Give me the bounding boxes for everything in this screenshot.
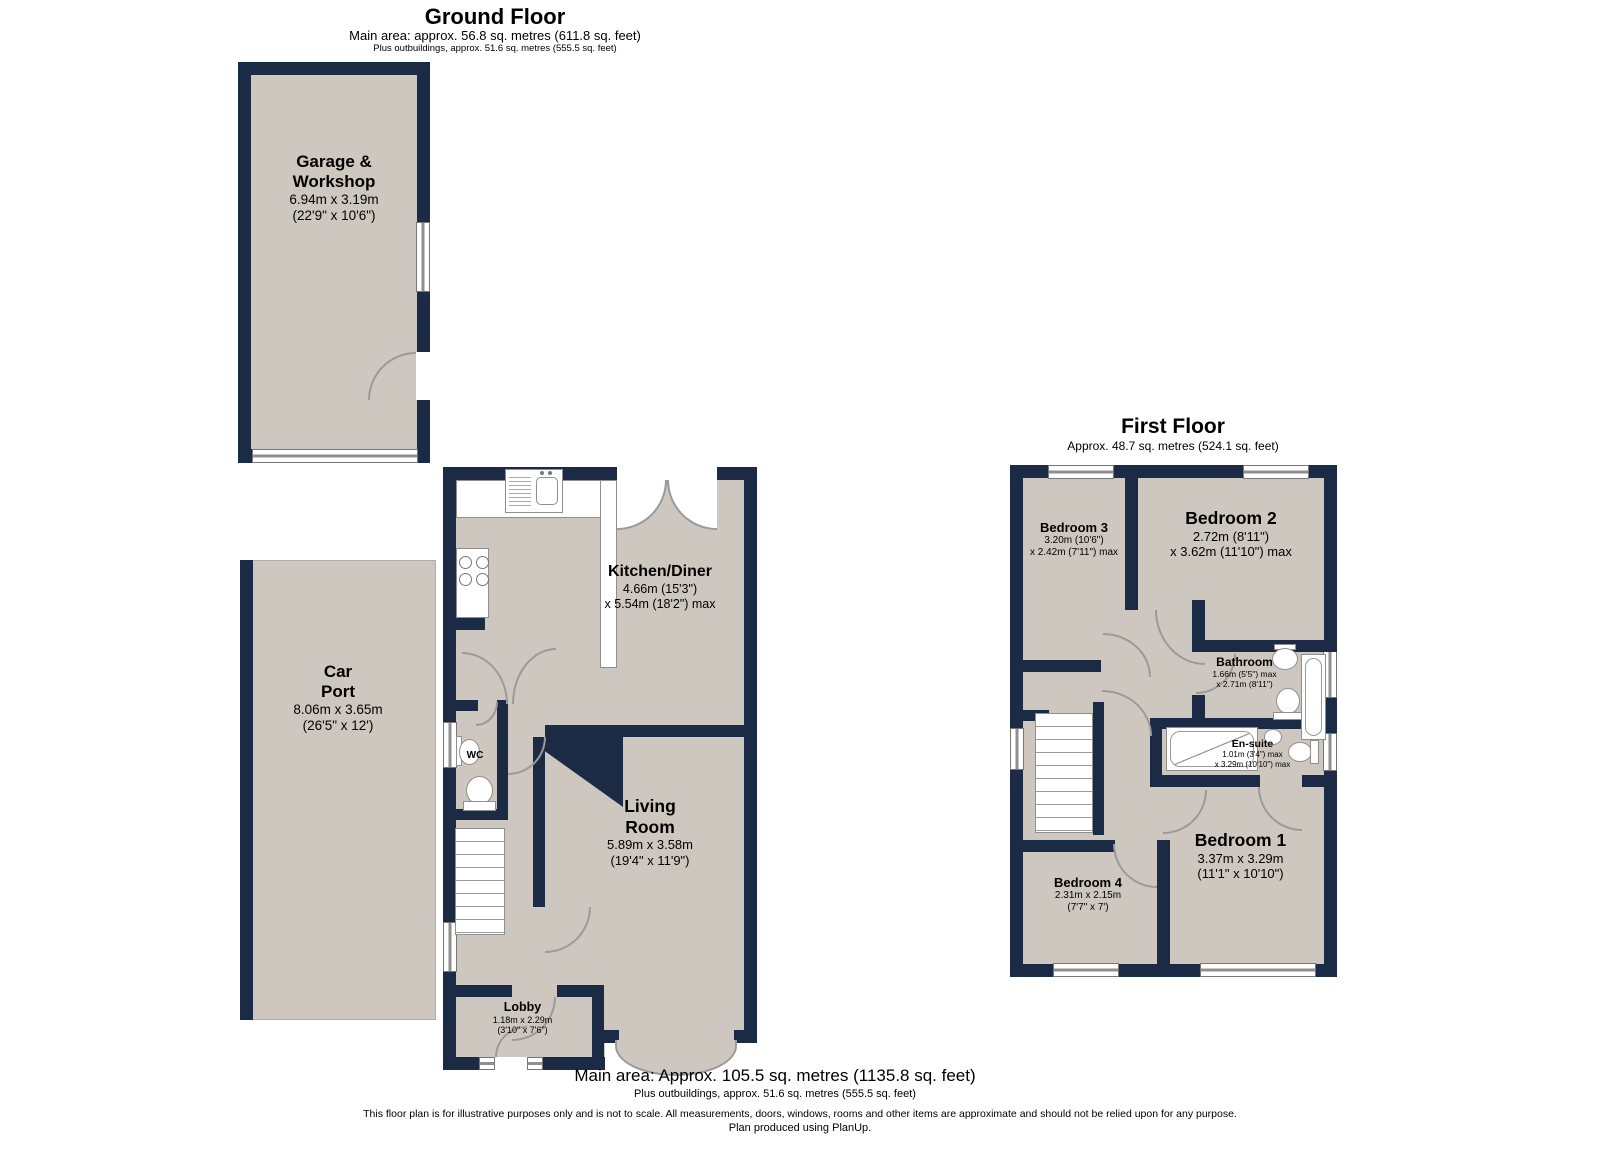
lobby-label: Lobby 1.18m x 2.29m (3'10" x 7'6")	[465, 1000, 580, 1036]
wc-label: WC	[455, 750, 495, 762]
kitchen-living-wall	[617, 725, 744, 737]
garage-dims-imperial: (22'9" x 10'6")	[238, 208, 430, 224]
bedroom2-name: Bedroom 2	[1138, 508, 1324, 529]
ensuite-wall-bottom-left	[1150, 775, 1260, 787]
bedroom4-window	[1053, 963, 1119, 977]
bed2-wall-bottom	[1198, 640, 1337, 652]
bedroom3-dims-metric: 3.20m (10'6")	[1023, 535, 1125, 547]
ground-floor-outbuildings: Plus outbuildings, approx. 51.6 sq. metr…	[295, 43, 695, 54]
kitchen-name: Kitchen/Diner	[570, 563, 750, 582]
garage-door-opening	[416, 352, 430, 400]
ensuite-cistern-icon	[1310, 740, 1319, 764]
footer-produced-by: Plan produced using PlanUp.	[0, 1122, 1600, 1134]
lobby-dims-imperial: (3'10" x 7'6")	[465, 1025, 580, 1036]
garage-label: Garage & Workshop 6.94m x 3.19m (22'9" x…	[238, 152, 430, 224]
bed4-wall-top	[1023, 840, 1115, 852]
carport-floor	[240, 560, 436, 1020]
drainer-icon	[509, 477, 531, 507]
tap-icon	[540, 471, 544, 475]
ground-floor-title: Ground Floor	[295, 4, 695, 30]
bedroom3-label: Bedroom 3 3.20m (10'6") x 2.42m (7'11") …	[1023, 520, 1125, 559]
ensuite-name: En-suite	[1200, 738, 1305, 750]
carport-dims-metric: 8.06m x 3.65m	[240, 702, 436, 718]
bedroom3-name: Bedroom 3	[1023, 520, 1125, 535]
bedroom1-dims-imperial: (11'1" x 10'10")	[1157, 866, 1324, 881]
garage-name2: Workshop	[238, 172, 430, 192]
first-floor-title: First Floor	[1023, 415, 1323, 439]
bathroom-dims-imperial: x 2.71m (8'11")	[1192, 679, 1297, 689]
living-wall-bottom-right	[734, 1030, 757, 1043]
lobby-name: Lobby	[465, 1000, 580, 1015]
bedroom3-window	[1048, 465, 1114, 479]
bathroom-name: Bathroom	[1192, 655, 1297, 669]
bathroom-bath-icon	[1301, 654, 1326, 740]
bedroom4-name: Bedroom 4	[1023, 875, 1153, 890]
bedroom3-dims-imperial: x 2.42m (7'11") max	[1023, 547, 1125, 559]
kitchen-label: Kitchen/Diner 4.66m (15'3") x 5.54m (18'…	[570, 563, 750, 611]
sink-bowl-icon	[536, 477, 558, 505]
bedroom2-dims-metric: 2.72m (8'11")	[1138, 529, 1324, 544]
bedroom1-label: Bedroom 1 3.37m x 3.29m (11'1" x 10'10")	[1157, 830, 1324, 881]
bed23-divider	[1125, 478, 1138, 610]
bedroom2-dims-imperial: x 3.62m (11'10") max	[1138, 544, 1324, 559]
bedroom1-name: Bedroom 1	[1157, 830, 1324, 851]
carport-name: Car	[240, 662, 436, 682]
stairs-ground	[455, 828, 505, 935]
house-wall-right	[744, 467, 757, 1043]
french-door-opening	[617, 467, 717, 480]
footer-disclaimer: This floor plan is for illustrative purp…	[0, 1108, 1600, 1120]
living-dims-metric: 5.89m x 3.58m	[560, 837, 740, 852]
wc-cistern-icon	[463, 801, 496, 811]
bedroom4-label: Bedroom 4 2.31m x 2.15m (7'7" x 7')	[1023, 875, 1153, 914]
garage-vehicle-door	[252, 449, 418, 463]
living-name2: Room	[560, 817, 740, 838]
bathroom-dims-metric: 1.66m (5'5") max	[1192, 669, 1297, 679]
landing-window	[1010, 728, 1024, 770]
footer-main-area: Main area: Approx. 105.5 sq. metres (113…	[0, 1066, 1550, 1086]
bedroom2-window	[1243, 465, 1309, 479]
carport-label: Car Port 8.06m x 3.65m (26'5" x 12')	[240, 662, 436, 734]
living-label: Living Room 5.89m x 3.58m (19'4" x 11'9"…	[560, 796, 740, 868]
bedroom4-dims-metric: 2.31m x 2.15m	[1023, 890, 1153, 902]
garage-window	[416, 222, 430, 292]
floorplan-page: Ground Floor Main area: approx. 56.8 sq.…	[0, 0, 1600, 1163]
kitchen-dims-metric: 4.66m (15'3")	[570, 582, 750, 597]
wc-wall-right	[497, 700, 508, 820]
stairs-first	[1035, 713, 1093, 833]
stove-icon	[459, 556, 488, 585]
lobby-dims-metric: 1.18m x 2.29m	[465, 1015, 580, 1026]
kitchen-wall-stub	[455, 618, 485, 630]
garage-dims-metric: 6.94m x 3.19m	[238, 192, 430, 208]
lobby-wall-top-left	[443, 985, 512, 997]
carport-dims-imperial: (26'5" x 12')	[240, 718, 436, 734]
footer-outbuildings: Plus outbuildings, approx. 51.6 sq. metr…	[0, 1088, 1550, 1100]
first-floor-area: Approx. 48.7 sq. metres (524.1 sq. feet)	[1023, 439, 1323, 453]
bed3-wall-bottom	[1023, 660, 1101, 672]
bedroom4-dims-imperial: (7'7" x 7')	[1023, 902, 1153, 914]
bathroom-label: Bathroom 1.66m (5'5") max x 2.71m (8'11"…	[1192, 655, 1297, 689]
house-wall-left	[443, 467, 456, 1070]
bedroom2-label: Bedroom 2 2.72m (8'11") x 3.62m (11'10")…	[1138, 508, 1324, 559]
ground-floor-area: Main area: approx. 56.8 sq. metres (611.…	[295, 28, 695, 43]
carport-name2: Port	[240, 682, 436, 702]
ensuite-label: En-suite 1.01m (3'4") max x 3.29m (10'10…	[1200, 738, 1305, 769]
bathroom-cistern-icon	[1273, 712, 1303, 720]
bedroom1-window	[1200, 963, 1316, 977]
bathroom-toilet-icon	[1276, 688, 1300, 714]
living-name: Living	[560, 796, 740, 817]
living-dims-imperial: (19'4" x 11'9")	[560, 853, 740, 868]
tap-icon	[548, 471, 552, 475]
ensuite-dims-imperial: x 3.29m (10'10") max	[1200, 760, 1305, 769]
bedroom1-dims-metric: 3.37m x 3.29m	[1157, 851, 1324, 866]
carport-wall	[240, 560, 253, 1020]
wc-name: WC	[455, 750, 495, 762]
kitchen-dims-imperial: x 5.54m (18'2") max	[570, 597, 750, 612]
ensuite-wall-bottom-right	[1302, 775, 1337, 787]
ensuite-dims-metric: 1.01m (3'4") max	[1200, 750, 1305, 759]
garage-name: Garage &	[238, 152, 430, 172]
